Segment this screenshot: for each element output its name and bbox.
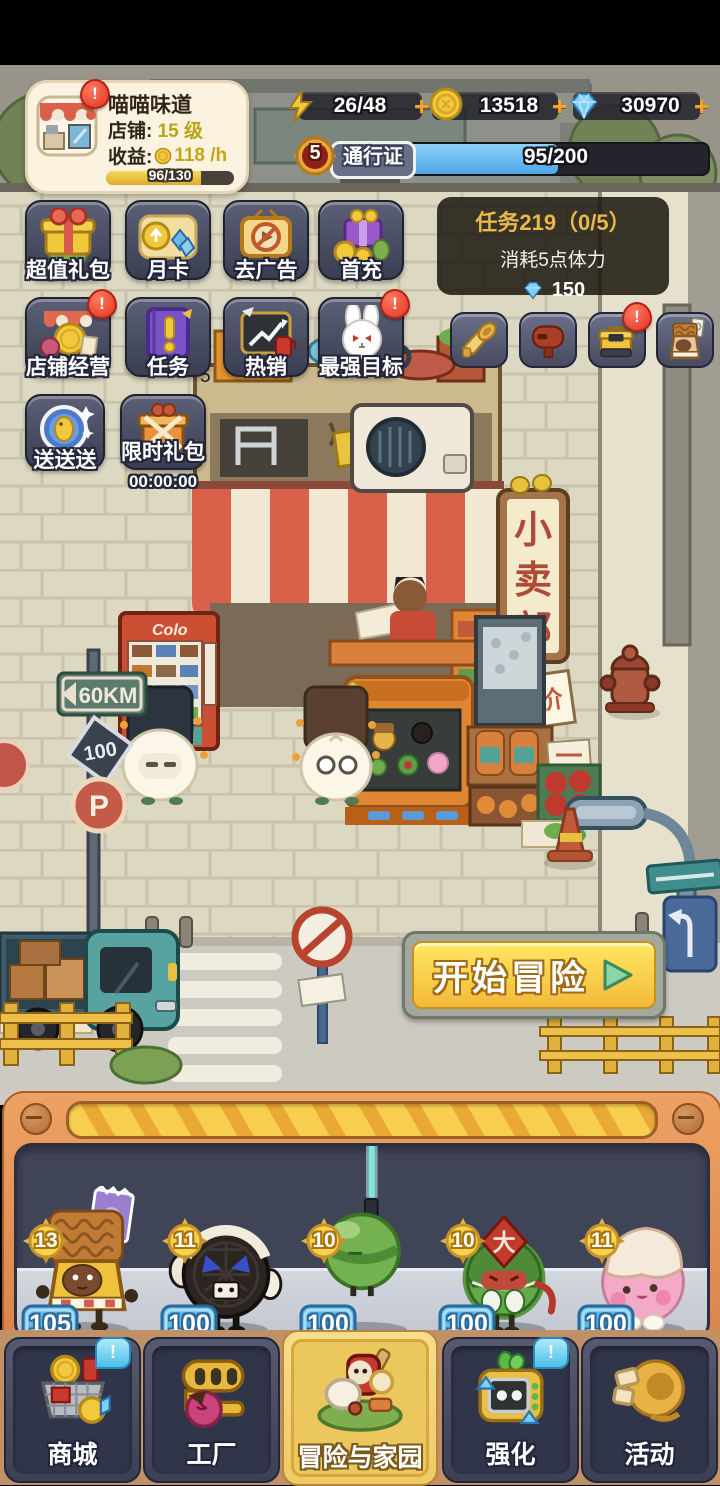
start-adventure-button[interactable]: 开始冒险 bbox=[412, 941, 656, 1009]
screw-icon bbox=[20, 1103, 52, 1135]
event-horn-icon bbox=[610, 1351, 690, 1433]
toolbox-alert-badge: ! bbox=[622, 302, 652, 332]
shop-notify-bubble: ! bbox=[95, 1337, 131, 1369]
shop-sign-char-1: 小 bbox=[514, 510, 552, 552]
status-bar bbox=[0, 0, 720, 65]
hot-sale-label: 热销 bbox=[245, 351, 287, 381]
mailbox-icon bbox=[527, 319, 569, 361]
level-badge: 10 bbox=[440, 1218, 486, 1264]
giveaway-button[interactable]: 送送送 bbox=[25, 394, 105, 470]
announce-button[interactable] bbox=[450, 312, 508, 368]
shop-info-card[interactable]: ! 喵喵味道 店铺: 15 级 收益: 118 /h 96/130 bbox=[25, 80, 249, 194]
first-charge-label: 首充 bbox=[340, 254, 382, 284]
strongest-goal-button[interactable]: ! 最强目标 bbox=[318, 297, 404, 377]
adventure-home-icon bbox=[312, 1344, 408, 1432]
roster-slot-1[interactable]: 13 bbox=[17, 1146, 156, 1338]
add-energy-button[interactable]: + bbox=[414, 93, 429, 119]
strongest-goal-alert-badge: ! bbox=[380, 289, 410, 319]
task-panel[interactable]: 任务219（0/5） 消耗5点体力 150 bbox=[437, 197, 669, 295]
tab-adventure-home[interactable]: 冒险与家园 bbox=[282, 1330, 438, 1486]
enhance-notify-bubble: ! bbox=[533, 1337, 569, 1369]
shop-level-value: 15 级 bbox=[158, 121, 203, 142]
mailbox-button[interactable] bbox=[519, 312, 577, 368]
vending-brand: Colo bbox=[152, 622, 188, 639]
remove-ads-label: 去广告 bbox=[235, 254, 298, 284]
tab-adventure-home-label: 冒险与家园 bbox=[297, 1438, 422, 1474]
roster-panel: 13 bbox=[2, 1091, 720, 1351]
coins-icon bbox=[428, 86, 464, 122]
shop-level-row: 店铺: 15 级 bbox=[108, 116, 203, 143]
tasks-button[interactable]: 任务 bbox=[125, 297, 211, 377]
shop-sign-char-2: 卖 bbox=[514, 560, 552, 602]
tab-factory[interactable]: 工厂 bbox=[143, 1337, 280, 1483]
parking-sign: P bbox=[89, 790, 109, 823]
energy-icon bbox=[286, 88, 314, 124]
speed-limit-sign: 60KM bbox=[79, 683, 138, 708]
value-pack-button[interactable]: 超值礼包 bbox=[25, 200, 111, 280]
task-reward-value: 150 bbox=[552, 279, 585, 302]
level-value: 13 bbox=[23, 1218, 69, 1264]
roster-slot-5[interactable]: 11 100 棉花糖糖 bbox=[573, 1146, 710, 1338]
limited-pack-timer: 00:00:00 bbox=[129, 472, 197, 492]
task-reward: 150 bbox=[437, 279, 669, 302]
shop-income-row: 收益: 118 /h bbox=[108, 142, 227, 169]
add-coins-button[interactable]: + bbox=[552, 93, 567, 119]
tab-enhance[interactable]: ! 强化 bbox=[442, 1337, 579, 1483]
shop-manage-button[interactable]: ! 店铺经营 bbox=[25, 297, 111, 377]
add-diamonds-button[interactable]: + bbox=[694, 93, 709, 119]
noodle-ticket-button[interactable] bbox=[656, 312, 714, 368]
level-badge: 11 bbox=[579, 1218, 625, 1264]
first-charge-button[interactable]: 首充 bbox=[318, 200, 404, 280]
pass-level-badge: 5 bbox=[292, 133, 338, 179]
bottom-nav: ! 商城 工厂 冒险与家园 bbox=[0, 1330, 720, 1485]
remove-ads-button[interactable]: 去广告 bbox=[223, 200, 309, 280]
screw-icon bbox=[672, 1103, 704, 1135]
task-title: 任务219（0/5） bbox=[437, 205, 669, 237]
shop-manage-alert-badge: ! bbox=[87, 289, 117, 319]
shop-level-label: 店铺: bbox=[108, 121, 152, 142]
noodle-cup-icon bbox=[663, 317, 707, 363]
giveaway-label: 送送送 bbox=[34, 444, 97, 474]
monthly-card-button[interactable]: 月卡 bbox=[125, 200, 211, 280]
limited-pack-button[interactable]: 限时礼包 00:00:00 bbox=[120, 394, 206, 470]
pass-progress-text: 95/200 bbox=[406, 142, 706, 172]
level-value: 10 bbox=[440, 1218, 486, 1264]
diamond-icon bbox=[566, 90, 602, 122]
limited-pack-label: 限时礼包 bbox=[121, 436, 205, 466]
monthly-card-label: 月卡 bbox=[147, 254, 189, 284]
pass-level: 5 bbox=[292, 142, 338, 165]
hot-sale-button[interactable]: 热销 bbox=[223, 297, 309, 377]
factory-icon bbox=[172, 1351, 252, 1433]
energy-counter[interactable]: 26/48 bbox=[298, 92, 422, 120]
shop-xp-text: 96/130 bbox=[106, 167, 234, 183]
roster-slot-4[interactable]: 10 大 100 卷卷口香糖 bbox=[434, 1146, 573, 1338]
level-value: 11 bbox=[162, 1218, 208, 1264]
play-icon bbox=[599, 957, 635, 993]
gum-hat-char: 大 bbox=[492, 1229, 515, 1255]
tab-enhance-label: 强化 bbox=[485, 1435, 535, 1471]
roster-inner-panel: 13 bbox=[14, 1143, 710, 1341]
coin-icon bbox=[154, 147, 172, 165]
tab-shop-label: 商城 bbox=[47, 1435, 97, 1471]
start-adventure-label: 开始冒险 bbox=[433, 950, 589, 1001]
level-badge: 11 bbox=[162, 1218, 208, 1264]
shop-manage-label: 店铺经营 bbox=[26, 351, 110, 381]
tab-events-label: 活动 bbox=[624, 1435, 674, 1471]
conveyor-bar bbox=[66, 1101, 658, 1139]
level-value: 10 bbox=[301, 1218, 347, 1264]
shop-name: 喵喵味道 bbox=[108, 89, 192, 119]
shop-income-value: 118 /h bbox=[174, 145, 227, 167]
shop-alert-badge: ! bbox=[80, 79, 110, 109]
level-badge: 10 bbox=[301, 1218, 347, 1264]
roster-slot-2[interactable]: 11 100 黑白饼干 bbox=[156, 1146, 295, 1338]
start-adventure-plate: 开始冒险 bbox=[402, 931, 666, 1019]
tab-factory-label: 工厂 bbox=[186, 1435, 236, 1471]
tab-shop[interactable]: ! 商城 bbox=[4, 1337, 141, 1483]
level-value: 11 bbox=[579, 1218, 625, 1264]
tasks-label: 任务 bbox=[147, 351, 189, 381]
energy-value: 26/48 bbox=[298, 92, 422, 120]
shop-income-label: 收益: bbox=[108, 142, 152, 169]
value-pack-label: 超值礼包 bbox=[26, 254, 110, 284]
level-badge: 13 bbox=[23, 1218, 69, 1264]
toolbox-button[interactable]: ! bbox=[588, 312, 646, 368]
strongest-goal-label: 最强目标 bbox=[319, 351, 403, 381]
tab-events[interactable]: 活动 bbox=[581, 1337, 718, 1483]
pass-label[interactable]: 通行证 bbox=[330, 141, 416, 179]
diamond-icon bbox=[521, 280, 545, 301]
task-description: 消耗5点体力 bbox=[437, 245, 669, 272]
roster-slot-3[interactable]: 10 100 棒棒糖 bbox=[295, 1146, 434, 1338]
megaphone-icon bbox=[457, 318, 499, 360]
